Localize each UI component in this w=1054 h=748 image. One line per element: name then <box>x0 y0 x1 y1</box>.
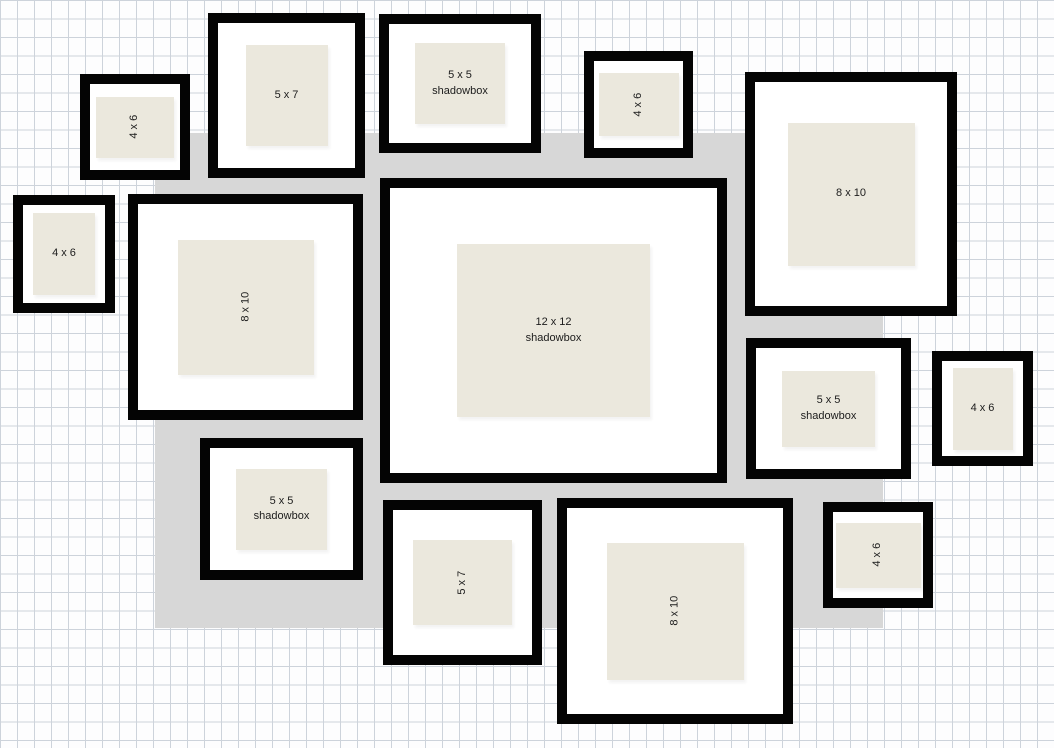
frame-5x7-top[interactable]: 5 x 7 <box>208 13 365 178</box>
frame-label: 5 x 7 <box>455 571 470 595</box>
photo-opening: 8 x 10 <box>607 543 744 680</box>
frame-label: 4 x 6 <box>127 115 142 139</box>
frame-4x6-top-left[interactable]: 4 x 6 <box>80 74 190 180</box>
frame-label: 12 x 12shadowbox <box>526 315 582 346</box>
photo-opening: 8 x 10 <box>788 123 915 266</box>
photo-opening: 5 x 5shadowbox <box>236 469 327 550</box>
frame-label: 8 x 10 <box>836 186 866 201</box>
frames-layer: 4 x 6 5 x 7 5 x 5shadowbox 4 x 6 8 x 10 … <box>0 0 1054 748</box>
frame-5x5-shadowbox-bottom-left[interactable]: 5 x 5shadowbox <box>200 438 363 580</box>
frame-4x6-top-center[interactable]: 4 x 6 <box>584 51 693 158</box>
frame-label: 4 x 6 <box>631 93 646 117</box>
photo-opening: 5 x 5shadowbox <box>782 371 875 447</box>
frame-5x5-shadowbox-top[interactable]: 5 x 5shadowbox <box>379 14 541 153</box>
photo-opening: 4 x 6 <box>96 97 174 158</box>
frame-label: 4 x 6 <box>52 246 76 261</box>
photo-opening: 5 x 7 <box>246 45 328 146</box>
photo-opening: 8 x 10 <box>178 240 314 375</box>
frame-5x5-shadowbox-right[interactable]: 5 x 5shadowbox <box>746 338 911 479</box>
frame-8x10-top-right[interactable]: 8 x 10 <box>745 72 957 316</box>
frame-label: 5 x 5shadowbox <box>432 68 488 99</box>
frame-5x7-bottom[interactable]: 5 x 7 <box>383 500 542 665</box>
frame-label: 4 x 6 <box>971 401 995 416</box>
frame-label: 4 x 6 <box>870 543 885 567</box>
photo-opening: 4 x 6 <box>33 213 95 295</box>
frame-label: 5 x 7 <box>275 88 299 103</box>
photo-opening: 4 x 6 <box>836 523 921 588</box>
frame-8x10-left[interactable]: 8 x 10 <box>128 194 363 420</box>
frame-12x12-shadowbox-center[interactable]: 12 x 12shadowbox <box>380 178 727 483</box>
frame-label: 5 x 5shadowbox <box>254 494 310 525</box>
photo-opening: 4 x 6 <box>953 368 1013 450</box>
frame-label: 8 x 10 <box>667 596 682 626</box>
frame-4x6-left[interactable]: 4 x 6 <box>13 195 115 313</box>
photo-opening: 4 x 6 <box>599 73 679 136</box>
photo-opening: 12 x 12shadowbox <box>457 244 650 417</box>
frame-4x6-right[interactable]: 4 x 6 <box>932 351 1033 466</box>
frame-label: 5 x 5shadowbox <box>801 393 857 424</box>
frame-8x10-bottom[interactable]: 8 x 10 <box>557 498 793 724</box>
frame-label: 8 x 10 <box>238 292 253 322</box>
photo-opening: 5 x 7 <box>413 540 512 625</box>
planner-canvas: { "app": {"title": "Gallery wall frame l… <box>0 0 1054 748</box>
photo-opening: 5 x 5shadowbox <box>415 43 505 124</box>
frame-4x6-bottom-right[interactable]: 4 x 6 <box>823 502 933 608</box>
